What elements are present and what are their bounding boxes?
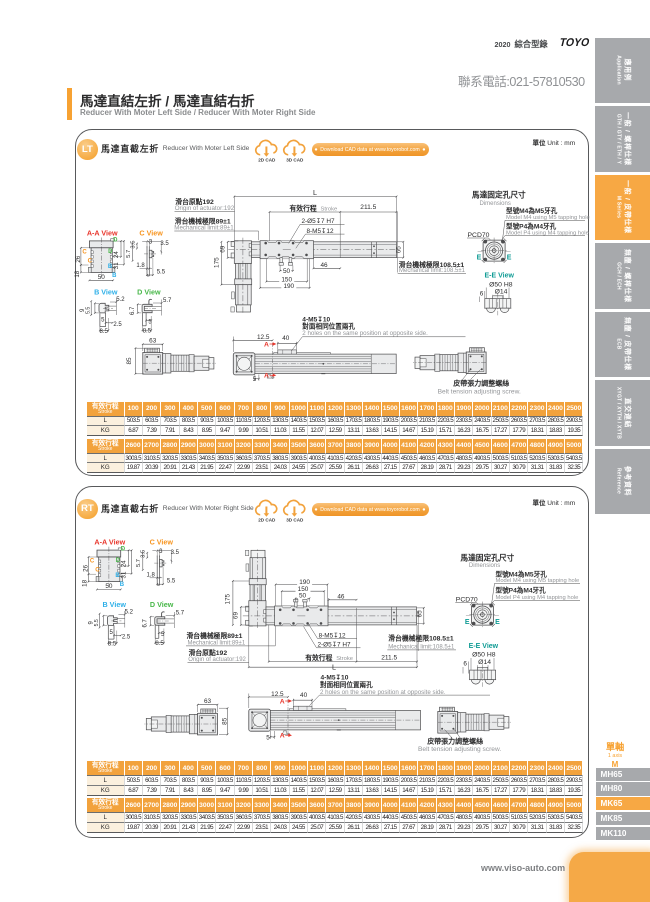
svg-text:12.5: 12.5 [271, 691, 284, 698]
svg-text:46: 46 [321, 262, 329, 269]
svg-text:L: L [332, 663, 336, 672]
svg-text:24: 24 [121, 560, 128, 567]
svg-text:5: 5 [101, 317, 105, 323]
svg-text:175: 175 [225, 593, 232, 604]
svg-text:E: E [477, 255, 482, 262]
svg-text:5.7: 5.7 [126, 250, 132, 258]
svg-text:40: 40 [282, 335, 290, 342]
svg-text:1.8: 1.8 [136, 263, 145, 269]
svg-text:190: 190 [299, 579, 310, 586]
svg-text:B View: B View [102, 600, 126, 609]
svg-text:26: 26 [75, 255, 82, 262]
svg-text:B: B [115, 573, 120, 579]
svg-text:6: 6 [463, 661, 467, 668]
svg-text:皮帶張力調整螺絲: 皮帶張力調整螺絲 [426, 737, 483, 746]
svg-text:A-A View: A-A View [94, 538, 125, 547]
svg-text:馬達固定孔尺寸: 馬達固定孔尺寸 [472, 190, 526, 200]
svg-text:3: 3 [159, 549, 163, 555]
svg-text:18: 18 [81, 579, 88, 586]
svg-text:2.5: 2.5 [122, 635, 131, 641]
svg-text:Origin of actuator:192: Origin of actuator:192 [175, 205, 235, 212]
svg-text:B View: B View [94, 288, 118, 297]
svg-text:2 holes on the same position a: 2 holes on the same position at opposite… [320, 689, 446, 696]
svg-text:型號P4為M4牙孔: 型號P4為M4牙孔 [496, 586, 547, 595]
svg-text:12.5: 12.5 [257, 334, 270, 341]
svg-text:E-E View: E-E View [484, 273, 514, 280]
svg-text:型號M4為M5牙孔: 型號M4為M5牙孔 [506, 206, 558, 215]
svg-text:E: E [507, 255, 512, 262]
svg-text:A: A [264, 341, 269, 348]
svg-text:型號P4為M4牙孔: 型號P4為M4牙孔 [506, 221, 557, 230]
svg-text:8-M5↧12: 8-M5↧12 [307, 228, 334, 235]
svg-text:26: 26 [83, 564, 90, 571]
svg-text:65: 65 [416, 610, 423, 618]
svg-text:150: 150 [298, 586, 309, 593]
svg-text:4-M5↧10: 4-M5↧10 [321, 674, 349, 682]
svg-text:5.2: 5.2 [116, 297, 125, 303]
svg-text:C View: C View [150, 538, 174, 547]
svg-text:2-Ø5↧7 H7: 2-Ø5↧7 H7 [302, 218, 336, 225]
svg-text:型號M4為M5牙孔: 型號M4為M5牙孔 [496, 569, 548, 578]
svg-text:3: 3 [149, 240, 153, 246]
svg-text:L: L [313, 188, 317, 197]
svg-text:C: C [90, 559, 95, 565]
svg-text:C: C [88, 259, 93, 265]
svg-text:6.7: 6.7 [143, 618, 149, 627]
svg-text:A: A [264, 373, 269, 380]
svg-text:5.7: 5.7 [136, 559, 142, 567]
svg-text:B: B [112, 273, 117, 279]
svg-text:2-Ø5↧7 H7: 2-Ø5↧7 H7 [318, 642, 352, 649]
svg-text:對面相同位置兩孔: 對面相同位置兩孔 [320, 680, 373, 689]
svg-text:5: 5 [253, 376, 257, 383]
svg-text:滑台機械極限108.5±1: 滑台機械極限108.5±1 [388, 634, 454, 643]
svg-text:63: 63 [204, 698, 212, 705]
svg-text:B: B [108, 264, 113, 270]
svg-text:46: 46 [337, 594, 345, 601]
svg-text:D View: D View [150, 600, 174, 609]
svg-text:50: 50 [299, 593, 307, 600]
svg-text:50: 50 [283, 268, 291, 275]
svg-text:E: E [465, 619, 470, 626]
svg-text:Ø50 H8: Ø50 H8 [472, 652, 496, 659]
svg-text:Ø14: Ø14 [478, 659, 491, 666]
svg-text:31: 31 [121, 571, 128, 578]
svg-text:有效行程: 有效行程 [305, 653, 332, 662]
svg-text:Dimensions: Dimensions [469, 563, 500, 569]
svg-text:190: 190 [283, 283, 294, 290]
svg-text:69: 69 [220, 245, 227, 253]
svg-text:3.5: 3.5 [130, 241, 136, 249]
svg-text:63: 63 [149, 338, 157, 345]
svg-text:50: 50 [105, 583, 113, 590]
svg-text:50: 50 [98, 274, 106, 281]
svg-text:5.5: 5.5 [94, 619, 100, 626]
svg-text:85: 85 [221, 717, 228, 725]
svg-text:滑台機械極限89±1: 滑台機械極限89±1 [187, 631, 243, 640]
svg-text:40: 40 [300, 692, 308, 699]
svg-text:Ø50 H8: Ø50 H8 [489, 281, 513, 288]
svg-text:6: 6 [480, 290, 484, 297]
svg-text:Ø14: Ø14 [495, 289, 508, 296]
svg-text:31: 31 [113, 262, 120, 269]
svg-text:8.5: 8.5 [143, 329, 152, 335]
svg-text:C: C [82, 250, 87, 256]
svg-text:175: 175 [213, 257, 220, 268]
svg-text:5.5: 5.5 [157, 269, 166, 275]
svg-text:Stroke: Stroke [336, 656, 353, 662]
svg-text:211.5: 211.5 [360, 204, 376, 211]
svg-text:5.7: 5.7 [163, 298, 172, 304]
svg-text:Mechanical limit:89±1: Mechanical limit:89±1 [174, 225, 234, 232]
svg-text:滑台原點192: 滑台原點192 [189, 648, 228, 657]
svg-text:A: A [280, 733, 285, 740]
svg-text:A: A [280, 698, 285, 705]
svg-text:A-A View: A-A View [87, 228, 118, 237]
svg-text:5.7: 5.7 [176, 610, 185, 616]
svg-text:8.5: 8.5 [155, 641, 164, 647]
svg-text:E-E View: E-E View [469, 643, 499, 650]
svg-text:5.5: 5.5 [86, 307, 92, 314]
svg-text:5.2: 5.2 [125, 609, 134, 615]
svg-text:3.5: 3.5 [171, 550, 180, 556]
svg-text:D View: D View [137, 288, 161, 297]
svg-text:85: 85 [126, 357, 133, 365]
svg-text:65: 65 [396, 246, 403, 254]
svg-text:B: B [120, 582, 125, 588]
svg-text:D: D [108, 249, 113, 255]
svg-text:2.5: 2.5 [113, 322, 122, 328]
svg-text:C: C [95, 568, 100, 574]
svg-text:有效行程: 有效行程 [290, 204, 317, 213]
svg-text:D: D [121, 547, 126, 553]
svg-text:Stroke: Stroke [321, 207, 338, 213]
svg-text:5.5: 5.5 [167, 579, 176, 585]
svg-text:69: 69 [232, 612, 239, 620]
svg-text:2 holes on the same position a: 2 holes on the same position at opposite… [302, 330, 428, 337]
svg-text:4-M5↧10: 4-M5↧10 [302, 315, 330, 323]
svg-text:1.8: 1.8 [147, 572, 156, 578]
svg-text:8-M5↧12: 8-M5↧12 [319, 632, 346, 639]
svg-text:18: 18 [74, 270, 81, 277]
svg-text:5: 5 [110, 630, 114, 636]
svg-text:馬達固定孔尺寸: 馬達固定孔尺寸 [460, 553, 514, 563]
svg-text:3.5: 3.5 [160, 241, 169, 247]
svg-text:D: D [113, 238, 118, 244]
svg-text:E: E [495, 619, 500, 626]
svg-text:3.5: 3.5 [141, 550, 147, 558]
svg-text:D: D [116, 558, 121, 564]
svg-text:24: 24 [113, 251, 120, 258]
svg-text:211.5: 211.5 [381, 654, 397, 661]
svg-text:皮帶張力調整螺絲: 皮帶張力調整螺絲 [452, 379, 509, 388]
svg-text:Belt tension adjusting screw.: Belt tension adjusting screw. [438, 388, 521, 395]
svg-text:5: 5 [266, 735, 270, 742]
svg-text:C View: C View [139, 228, 163, 237]
svg-text:Dimensions: Dimensions [480, 201, 511, 207]
svg-text:6.7: 6.7 [130, 306, 136, 315]
svg-text:Belt tension adjusting screw.: Belt tension adjusting screw. [418, 746, 501, 753]
